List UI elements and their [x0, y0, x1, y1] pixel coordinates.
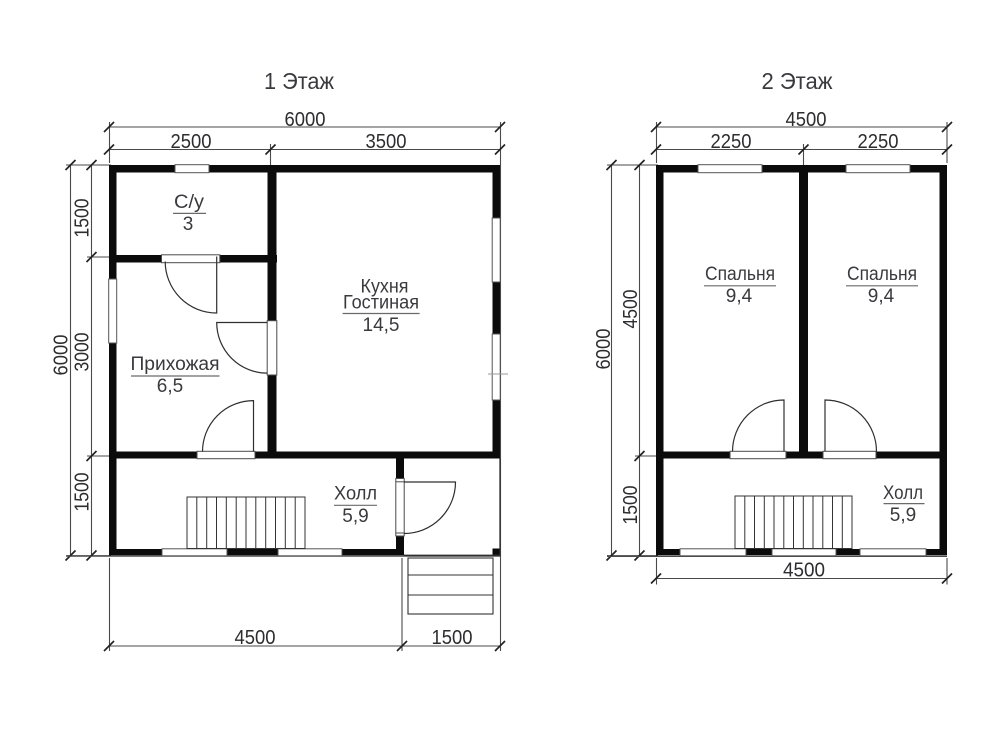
svg-text:3: 3	[183, 214, 194, 235]
svg-text:6000: 6000	[593, 329, 615, 370]
svg-text:Холл: Холл	[883, 483, 923, 504]
svg-text:2250: 2250	[711, 131, 752, 153]
svg-text:2500: 2500	[171, 131, 212, 153]
svg-text:1500: 1500	[432, 627, 473, 649]
svg-text:2250: 2250	[858, 131, 899, 153]
svg-text:6000: 6000	[285, 109, 326, 131]
svg-text:9,4: 9,4	[868, 286, 895, 307]
svg-text:Спальня: Спальня	[705, 264, 775, 285]
svg-text:С/у: С/у	[174, 192, 205, 213]
svg-text:1500: 1500	[72, 199, 94, 238]
svg-text:3500: 3500	[366, 131, 407, 153]
svg-text:1 Этаж: 1 Этаж	[264, 68, 334, 94]
svg-text:Холл: Холл	[334, 484, 377, 505]
svg-text:6000: 6000	[51, 335, 73, 376]
svg-text:4500: 4500	[235, 627, 276, 649]
svg-text:1500: 1500	[72, 473, 94, 512]
svg-text:Спальня: Спальня	[847, 264, 917, 285]
svg-text:14,5: 14,5	[363, 315, 400, 336]
svg-text:5,9: 5,9	[342, 506, 368, 527]
svg-text:4500: 4500	[620, 290, 642, 329]
svg-text:Гостиная: Гостиная	[343, 293, 419, 314]
svg-text:2 Этаж: 2 Этаж	[762, 68, 833, 94]
svg-text:4500: 4500	[786, 109, 827, 131]
svg-text:3000: 3000	[72, 333, 94, 372]
svg-text:9,4: 9,4	[726, 286, 753, 307]
svg-text:6,5: 6,5	[157, 376, 183, 397]
svg-text:Прихожая: Прихожая	[131, 354, 220, 375]
svg-text:4500: 4500	[783, 560, 825, 582]
svg-text:1500: 1500	[620, 486, 642, 525]
svg-text:5,9: 5,9	[890, 505, 916, 526]
